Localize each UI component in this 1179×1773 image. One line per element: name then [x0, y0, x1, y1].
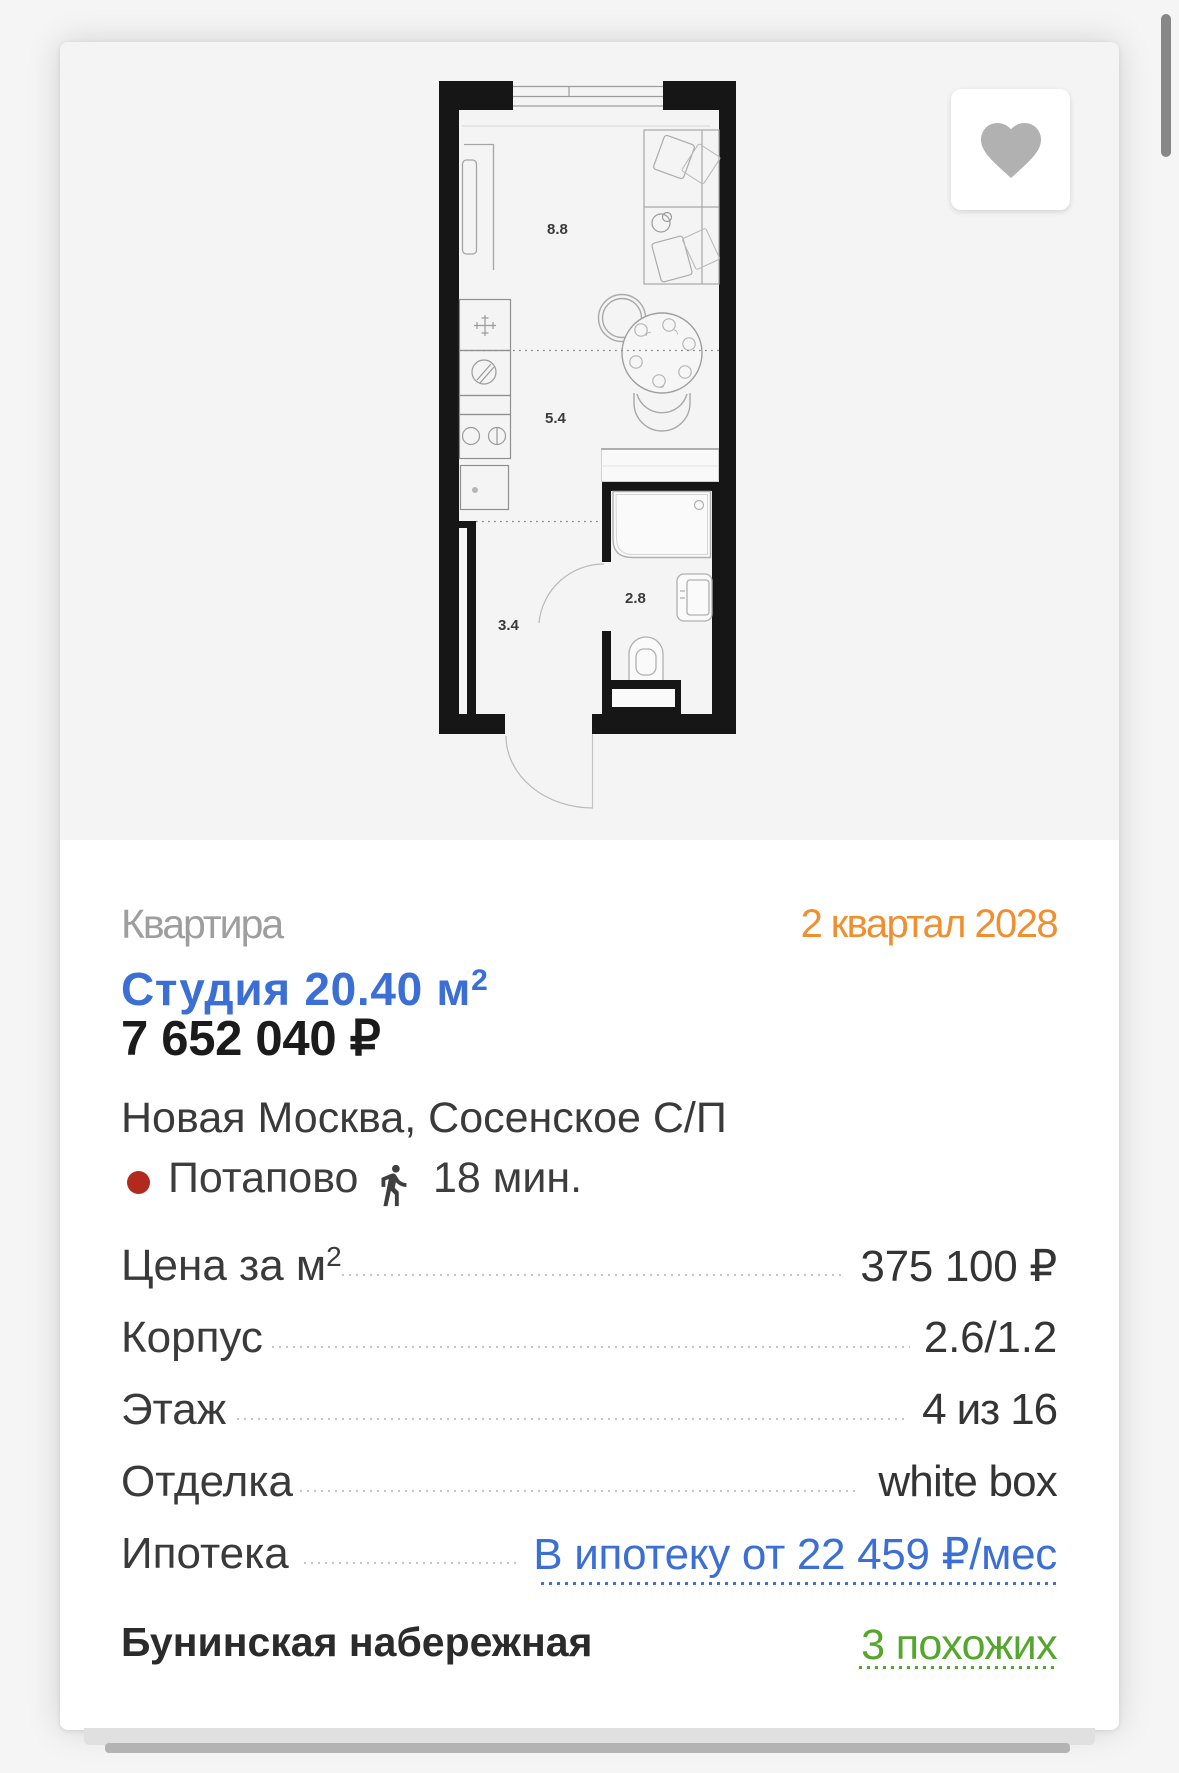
svg-text:8.8: 8.8 [547, 221, 568, 238]
svg-text:5.4: 5.4 [545, 410, 567, 427]
svg-text:3.4: 3.4 [498, 617, 520, 634]
svg-text:2.8: 2.8 [625, 590, 646, 607]
